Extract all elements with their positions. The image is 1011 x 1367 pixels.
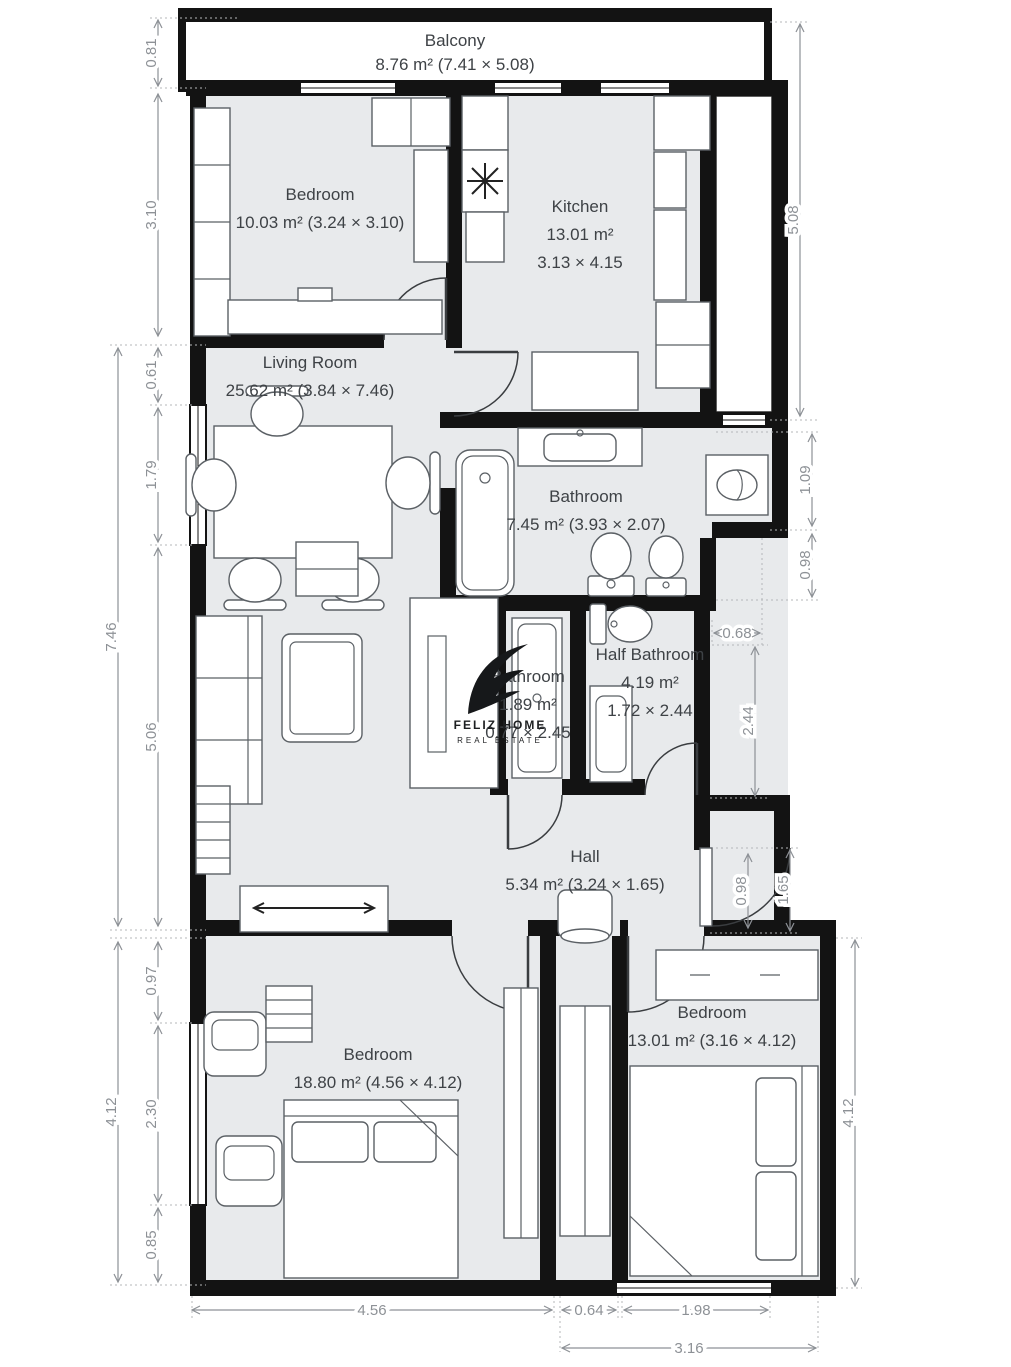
wardrobe-bl [504, 988, 538, 1238]
label-living-room-size: 25.62 m² (3.84 × 7.46) [226, 381, 395, 400]
sideboard [296, 542, 358, 596]
bed-bottom-left [284, 1100, 458, 1278]
dim-1-98: 1.98 [681, 1302, 710, 1319]
wall-balcony-top [178, 8, 772, 22]
wall-bathroom-left [440, 488, 456, 611]
dim-0-68: 0.68 [722, 625, 751, 642]
label-half-bathroom-area: 4.19 m² [621, 673, 679, 692]
brand-name: FELIZ HOME [454, 718, 547, 732]
dim-4-56: 4.56 [357, 1302, 386, 1319]
wall-top [186, 80, 788, 96]
desk [228, 300, 442, 334]
label-kitchen-size: 3.13 × 4.15 [537, 253, 623, 272]
coffee-table [282, 634, 362, 742]
label-half-bathroom-size: 1.72 × 2.44 [607, 701, 693, 720]
wall-hall-bottom-2 [528, 920, 560, 936]
wall-entry-right [774, 811, 790, 936]
dim-1-09: 1.09 [797, 465, 814, 494]
label-hall-size: 5.34 m² (3.24 × 1.65) [505, 875, 664, 894]
label-half-bathroom: Half Bathroom [596, 645, 705, 664]
wall-balcony-left [178, 8, 186, 92]
wall-entry-top [694, 795, 790, 811]
window-bedroom-top [300, 82, 396, 94]
armchair-bottom [216, 1136, 282, 1206]
wardrobe-corridor [560, 1006, 610, 1236]
dim-5-08: 5.08 [785, 205, 802, 234]
toilet-icon [588, 533, 634, 596]
dining-table [214, 426, 392, 558]
label-kitchen: Kitchen [552, 197, 609, 216]
shelf-bl [266, 986, 312, 1042]
dim-7-46: 7.46 [103, 622, 120, 651]
brand-tagline: REAL ESTATE [457, 736, 543, 745]
label-bedroom-br-size: 13.01 m² (3.16 × 4.12) [628, 1031, 797, 1050]
dim-4-12-right: 4.12 [840, 1098, 857, 1127]
dim-5-06: 5.06 [143, 722, 160, 751]
radiator [196, 786, 230, 874]
label-living-room: Living Room [263, 353, 358, 372]
dim-0-97: 0.97 [143, 966, 160, 995]
label-hall: Hall [570, 847, 599, 866]
wall-hall-right [694, 811, 710, 850]
wall-nook-step [700, 538, 716, 611]
dim-0-64: 0.64 [574, 1302, 603, 1319]
dresser [656, 950, 818, 1000]
dim-3-10: 3.10 [143, 200, 160, 229]
wall-hall-bottom-3 [620, 920, 628, 936]
label-kitchen-area: 13.01 m² [546, 225, 613, 244]
shaft-void [716, 96, 772, 412]
bidet-icon [646, 536, 686, 596]
wall-right-upper [772, 88, 788, 538]
label-balcony-size: 8.76 m² (7.41 × 5.08) [375, 55, 534, 74]
wall-right-lower [820, 936, 836, 1296]
dim-1-79: 1.79 [143, 460, 160, 489]
window-balcony-door [494, 82, 562, 94]
dim-0-85: 0.85 [143, 1230, 160, 1259]
wall-bath-divider [570, 611, 586, 779]
label-bedroom-bl: Bedroom [344, 1045, 413, 1064]
floor-plan-page: Balcony 8.76 m² (7.41 × 5.08) Bedroom 10… [0, 0, 1011, 1367]
dim-3-16: 3.16 [674, 1340, 703, 1357]
bathtub-icon [456, 450, 514, 596]
floor-plan-canvas: Balcony 8.76 m² (7.41 × 5.08) Bedroom 10… [0, 0, 1011, 1367]
label-bedroom-bl-size: 18.80 m² (4.56 × 4.12) [294, 1073, 463, 1092]
label-bathroom: Bathroom [549, 487, 623, 506]
label-balcony: Balcony [425, 31, 486, 50]
sofa [196, 616, 262, 804]
dim-2-30: 2.30 [143, 1099, 160, 1128]
wall-corridor-right [612, 936, 628, 1280]
label-bedroom-tl: Bedroom [286, 185, 355, 204]
window-laundry-nook [722, 414, 766, 426]
sink-icon [518, 428, 642, 466]
dim-4-12-left: 4.12 [103, 1097, 120, 1126]
wall-bath-bottom-3 [697, 779, 710, 795]
dim-0-81: 0.81 [143, 38, 160, 67]
bed-bottom-right [630, 1066, 818, 1276]
label-bedroom-br: Bedroom [678, 1003, 747, 1022]
dim-0-98-b: 0.98 [733, 876, 750, 905]
wall-balcony-right [764, 8, 772, 92]
dim-0-61: 0.61 [143, 360, 160, 389]
label-bathroom-size: 7.45 m² (3.93 × 2.07) [506, 515, 665, 534]
console-with-arrows [240, 886, 388, 932]
label-bathroom-small-area: 1.89 m² [499, 695, 557, 714]
desk-chair [298, 288, 332, 301]
washing-machine-icon [706, 455, 768, 515]
armchair-top [204, 1012, 266, 1076]
stove-icon [467, 163, 503, 199]
wall-hall-bottom-4 [704, 920, 836, 936]
kitchen-table [532, 352, 638, 410]
wardrobe [194, 108, 230, 336]
dim-0-98-a: 0.98 [797, 550, 814, 579]
entry-door-leaf [700, 848, 712, 926]
wall-corridor-left [540, 936, 556, 1280]
label-bedroom-tl-size: 10.03 m² (3.24 × 3.10) [236, 213, 405, 232]
window-bedroom-br-bottom [616, 1282, 772, 1294]
dim-1-65: 1.65 [775, 875, 792, 904]
shelf-unit [372, 98, 450, 146]
toilet-half-bath-icon [590, 604, 652, 644]
cabinet [414, 150, 448, 262]
window-kitchen-top [600, 82, 670, 94]
stool-icon [558, 890, 612, 943]
dim-2-44: 2.44 [740, 706, 757, 735]
